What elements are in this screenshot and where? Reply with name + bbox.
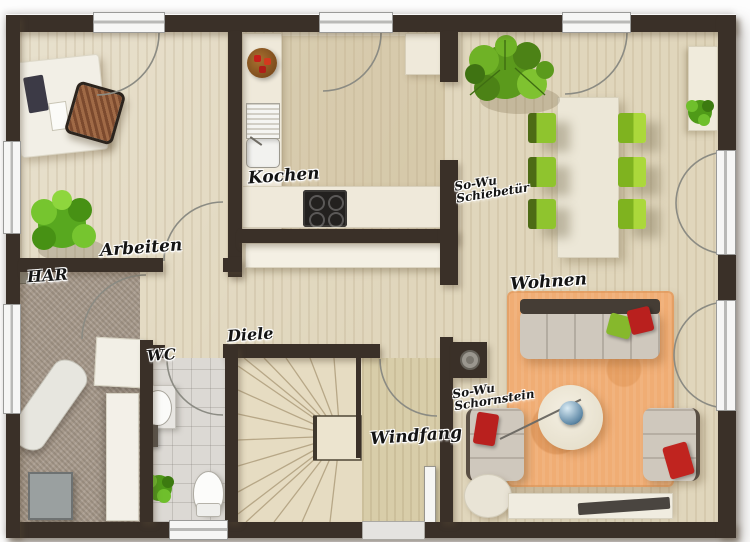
french-door-essen	[716, 150, 736, 255]
outer-wall-east	[718, 15, 736, 538]
stair-stringer-wall	[356, 358, 361, 458]
wall-stub-arbeiten-door	[223, 258, 242, 272]
window-west-arbeiten	[3, 141, 21, 234]
wc-door-arc	[167, 359, 223, 415]
kitchen-window-door-arc	[323, 33, 381, 91]
plant-dining	[465, 35, 560, 114]
windfang-door-arc	[380, 359, 437, 416]
wall-stair-north	[223, 344, 380, 358]
window-west-har	[3, 304, 21, 414]
wall-har-east	[140, 340, 153, 522]
window-north-arbeiten	[93, 12, 165, 33]
staircase	[238, 357, 362, 522]
window-south-wc	[169, 520, 228, 540]
plant-sideboard	[686, 100, 714, 126]
dining-window-door-arc	[565, 32, 627, 94]
floor-plan: Arbeiten HAR Kochen WC Diele Windfang Wo…	[0, 0, 750, 542]
outer-wall-west	[6, 15, 20, 538]
entrance-threshold	[362, 521, 425, 540]
plant-arbeiten	[31, 190, 106, 262]
wall-kueche-essen-north	[440, 32, 458, 82]
room-label-wc: WC	[146, 345, 176, 365]
arbeiten-window-door-arc	[97, 33, 159, 95]
window-north-essen	[562, 12, 631, 33]
chimney-vent-icon	[458, 348, 484, 374]
wall-wc-stair	[225, 345, 238, 522]
wall-kueche-south	[238, 229, 458, 243]
french-door-wohnen	[716, 300, 736, 411]
door-swing-arcs	[82, 32, 727, 416]
window-north-kueche	[319, 12, 393, 33]
room-label-har: HAR	[26, 265, 68, 287]
har-door-arc	[82, 275, 146, 339]
room-label-diele: Diele	[226, 323, 274, 345]
stair-landing	[314, 416, 361, 460]
